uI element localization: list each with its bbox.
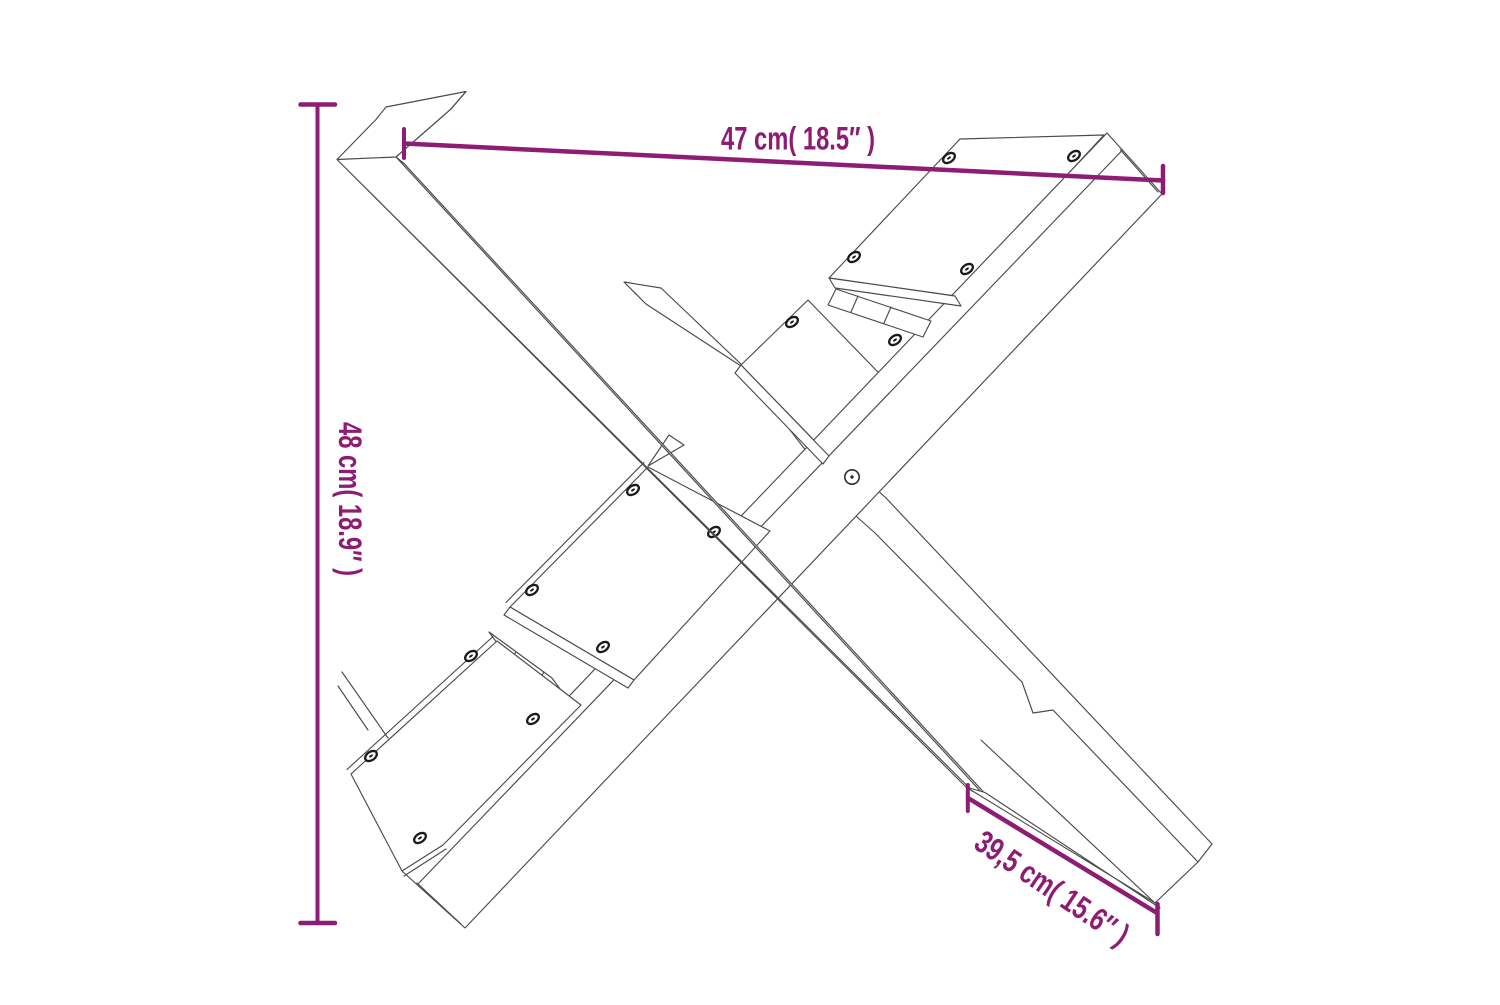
svg-text:48 cm( 18.9″ ): 48 cm( 18.9″ ): [332, 422, 368, 576]
svg-text:47 cm( 18.5″ ): 47 cm( 18.5″ ): [721, 121, 875, 157]
